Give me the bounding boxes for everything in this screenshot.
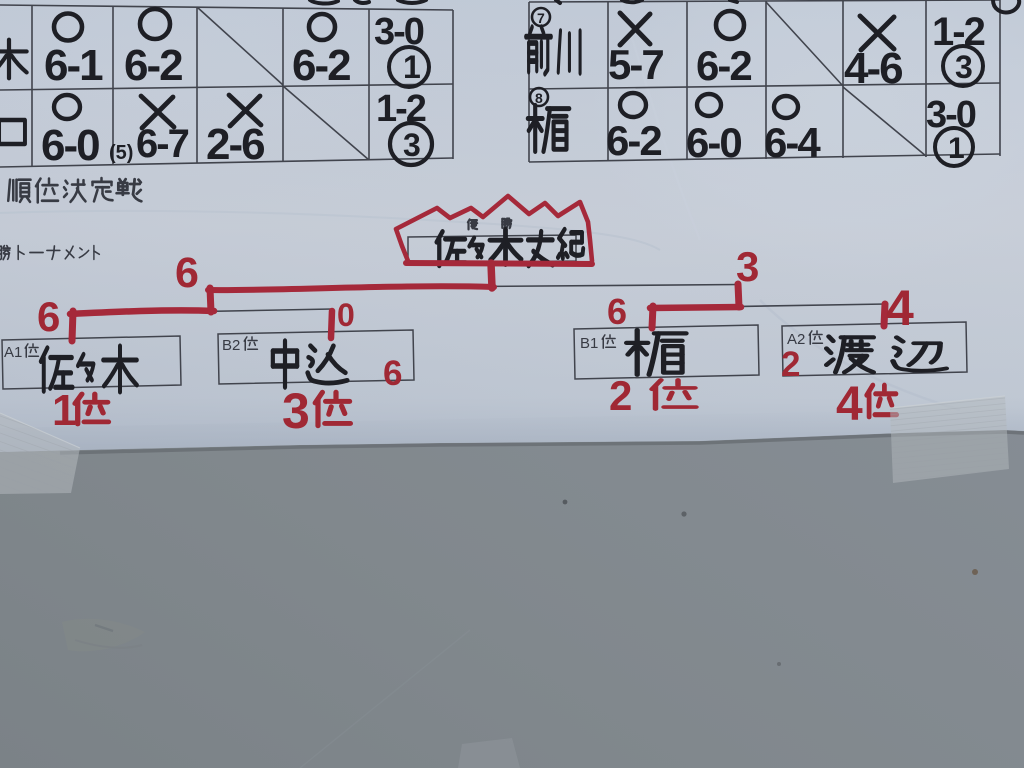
- svg-text:6-0: 6-0: [686, 119, 741, 166]
- svg-text:A1: A1: [4, 344, 22, 361]
- svg-text:6-1: 6-1: [44, 41, 103, 90]
- svg-text:6: 6: [383, 354, 402, 393]
- svg-text:0: 0: [337, 297, 355, 333]
- svg-text:2: 2: [609, 372, 632, 419]
- svg-text:6-7: 6-7: [136, 122, 189, 166]
- svg-text:(5): (5): [109, 142, 133, 164]
- svg-text:1: 1: [52, 386, 76, 435]
- svg-text:B1: B1: [580, 335, 598, 352]
- svg-text:3: 3: [955, 49, 973, 85]
- svg-text:6: 6: [175, 249, 199, 297]
- svg-text:6-4: 6-4: [764, 119, 821, 166]
- svg-text:6-2: 6-2: [292, 41, 350, 90]
- svg-text:1: 1: [403, 49, 421, 85]
- svg-text:4: 4: [886, 280, 914, 336]
- svg-text:6: 6: [37, 293, 60, 340]
- svg-text:6-0: 6-0: [41, 121, 99, 170]
- svg-text:4-6: 4-6: [844, 44, 902, 93]
- svg-text:1: 1: [948, 132, 965, 165]
- svg-text:6-2: 6-2: [124, 41, 182, 90]
- svg-text:4: 4: [836, 378, 863, 431]
- svg-text:6: 6: [607, 291, 627, 332]
- svg-text:6-2: 6-2: [606, 117, 661, 164]
- svg-text:2-6: 2-6: [206, 120, 264, 169]
- svg-text:3: 3: [736, 243, 759, 290]
- svg-text:7: 7: [537, 10, 545, 26]
- svg-text:5-7: 5-7: [608, 41, 663, 88]
- svg-text:B2: B2: [222, 337, 240, 354]
- svg-text:6-2: 6-2: [696, 42, 751, 89]
- svg-text:3: 3: [403, 127, 421, 163]
- svg-text:2: 2: [781, 345, 800, 384]
- svg-text:3: 3: [282, 383, 310, 439]
